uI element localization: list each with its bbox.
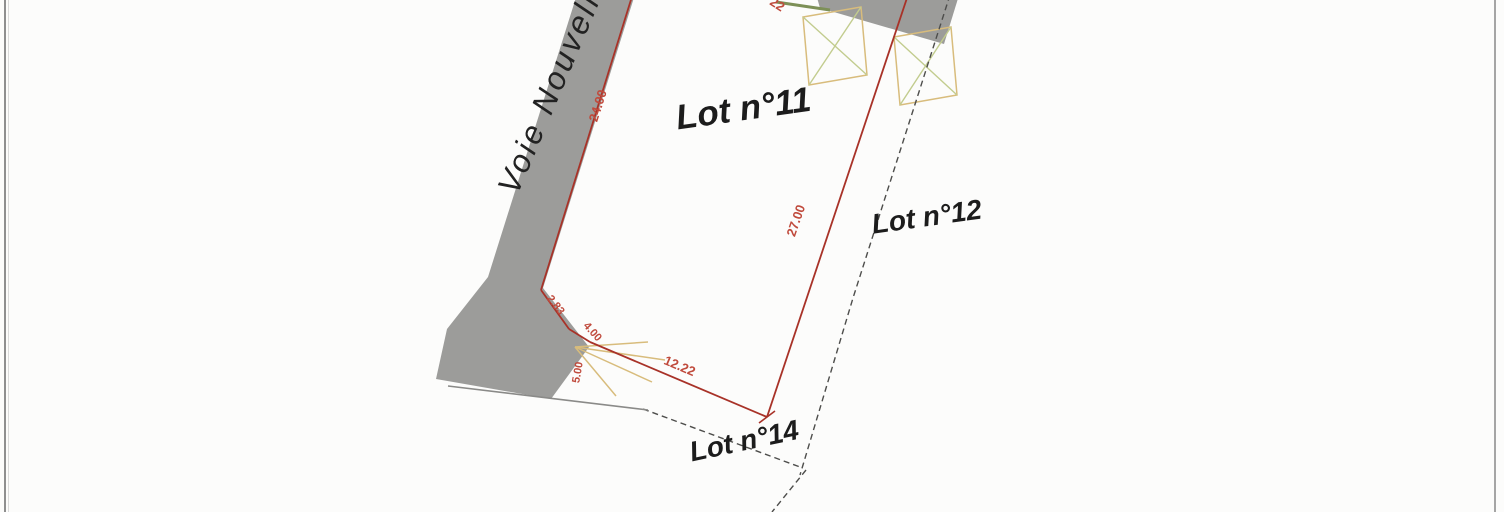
sheet-frame-right [1494,0,1496,512]
cadastral-plan-sheet: Voie Nouvelle Lot n°11 Lot n°12 Lot n°14… [0,0,1504,512]
sheet-frame-left-highlight [8,0,9,512]
sheet-frame-left [4,0,6,512]
carport-symbol-2 [894,27,957,105]
dimension-right-edge: 27.00 [783,203,808,239]
plan-drawing: Voie Nouvelle Lot n°11 Lot n°12 Lot n°14… [0,0,1504,512]
lot14-boundary-dashed-right [772,470,806,512]
lot14-label: Lot n°14 [687,414,802,467]
lot11-label: Lot n°11 [673,80,813,138]
dimension-top-partial: 22 [767,0,787,14]
road-surface-top-right [816,0,960,44]
lot12-label: Lot n°12 [870,193,984,239]
road-surface [436,0,637,399]
dimension-access-a: 4.00 [581,320,604,344]
dimension-access-b: 5.00 [570,361,586,384]
